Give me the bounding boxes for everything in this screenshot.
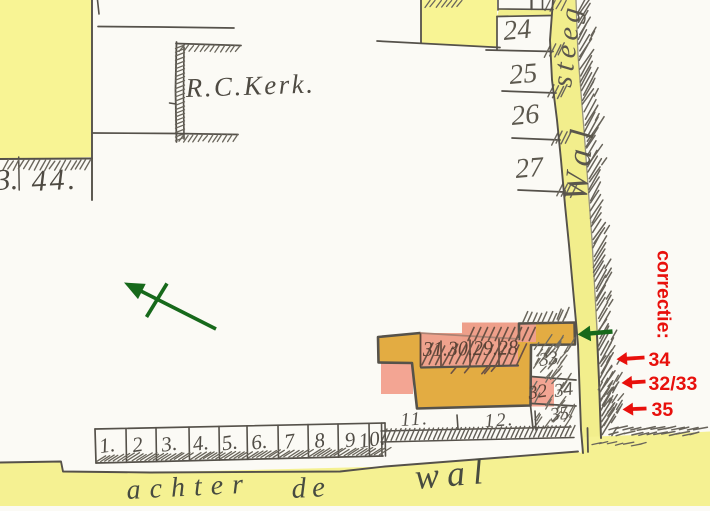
svg-text:27: 27 xyxy=(514,152,546,185)
svg-text:35: 35 xyxy=(548,403,571,427)
svg-text:33: 33 xyxy=(537,348,560,372)
svg-text:R.C.Kerk.: R.C.Kerk. xyxy=(184,68,316,103)
svg-text:44.: 44. xyxy=(31,163,79,198)
svg-text:35: 35 xyxy=(652,399,674,421)
svg-text:34: 34 xyxy=(552,378,575,402)
svg-text:10.: 10. xyxy=(357,426,386,453)
svg-text:12.: 12. xyxy=(484,409,515,432)
svg-text:correctie:: correctie: xyxy=(653,250,675,339)
svg-text:3.: 3. xyxy=(0,163,19,197)
svg-text:1.: 1. xyxy=(98,432,117,458)
svg-text:3.: 3. xyxy=(159,431,179,457)
svg-text:de: de xyxy=(291,471,332,505)
svg-text:25: 25 xyxy=(508,58,539,91)
svg-text:24: 24 xyxy=(502,14,533,47)
svg-text:achter: achter xyxy=(126,468,253,506)
svg-text:11.: 11. xyxy=(400,408,430,431)
svg-text:26: 26 xyxy=(510,99,541,132)
svg-text:34: 34 xyxy=(649,349,671,371)
svg-text:4.: 4. xyxy=(191,430,210,456)
svg-text:32: 32 xyxy=(526,380,549,404)
svg-text:32/33: 32/33 xyxy=(649,373,698,395)
svg-text:31.30.29.28: 31.30.29.28 xyxy=(422,335,519,361)
svg-text:5.: 5. xyxy=(220,429,239,455)
svg-text:6.: 6. xyxy=(250,429,269,455)
svg-text:wal: wal xyxy=(413,450,492,496)
